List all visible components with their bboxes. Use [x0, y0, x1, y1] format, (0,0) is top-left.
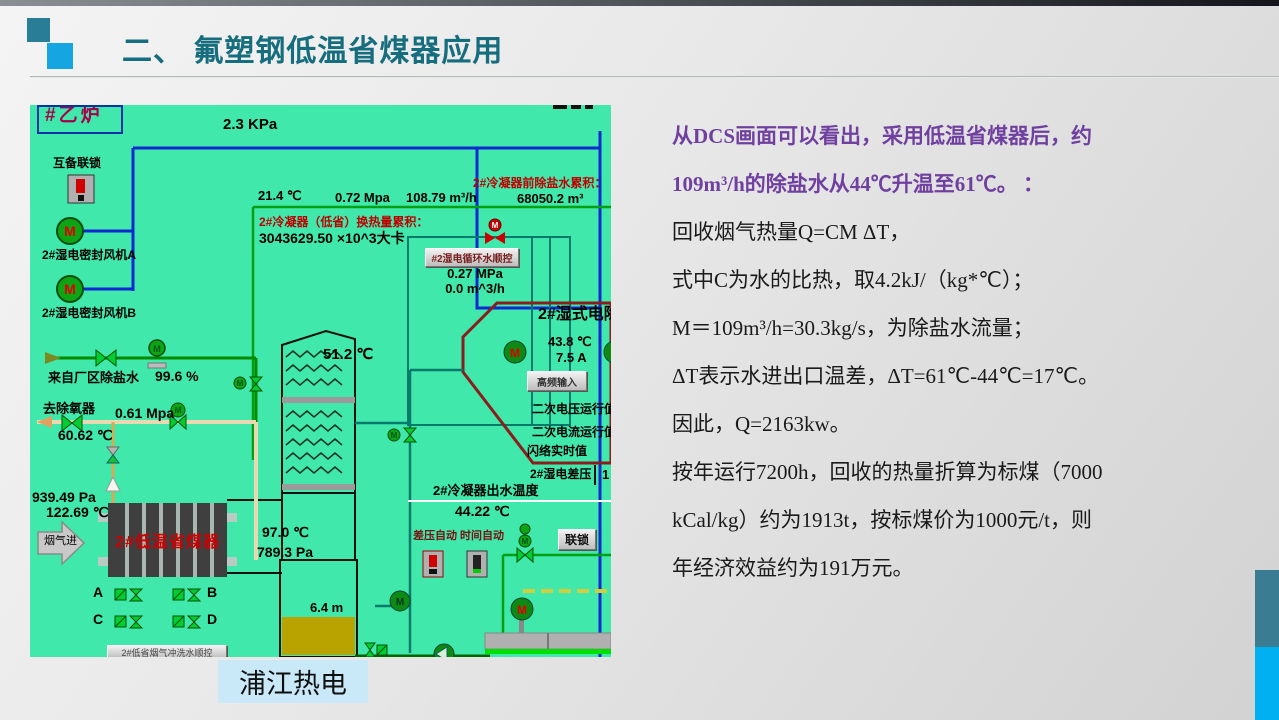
boiler-label-box: #乙炉: [37, 105, 123, 134]
circulation-seq-button[interactable]: #2湿电循环水顺控: [425, 248, 519, 267]
gas-in-pressure-value: 939.49 Pa: [32, 490, 96, 505]
body-line: kCal/kg）约为1913t，按标煤价为1000元/t，则: [672, 496, 1247, 544]
branch-motor-valve-icon[interactable]: M: [234, 377, 262, 391]
flue-duct-lines: [83, 131, 600, 657]
spray-motor-valve-icon[interactable]: M: [485, 219, 505, 244]
body-line: 从DCS画面可以看出，采用低温省煤器后，约: [672, 112, 1247, 160]
valve-open-value: 99.6 %: [155, 369, 199, 384]
drain-pump-icon[interactable]: [434, 644, 454, 657]
wesp-title: 2#湿式电除尘: [538, 307, 611, 324]
inlet-valve-icon[interactable]: [96, 350, 116, 366]
accent-bar-teal: [1255, 570, 1279, 647]
interlock-valve-icon[interactable]: [520, 524, 530, 534]
fan-a-motor-icon[interactable]: M: [57, 218, 83, 244]
wesp-motor2-icon[interactable]: [604, 341, 611, 363]
out-pressure-value: 789.3 Pa: [257, 545, 313, 560]
svg-text:M: M: [492, 221, 499, 230]
deaerator-label: 去除氧器: [43, 402, 95, 416]
svg-text:M: M: [391, 431, 398, 440]
svg-text:M: M: [64, 223, 76, 239]
page-title: 二、 氟塑钢低温省煤器应用: [122, 26, 503, 70]
outlet-temp-value: 44.22 ℃: [455, 504, 510, 519]
secondary-current-label: 二次电流运行值: [532, 426, 611, 439]
pre-desalt-accum-value: 68050.2 m³: [517, 192, 584, 206]
hf-input-button[interactable]: 高频输入: [527, 371, 587, 391]
svg-text:M: M: [175, 406, 182, 415]
condensate-pipes: [355, 370, 463, 653]
pre-desalt-accum-label: 2#冷凝器前除盐水累积：: [473, 177, 606, 190]
svg-text:M: M: [510, 346, 520, 360]
outlet-temp-label: 2#冷凝器出水温度: [433, 484, 538, 498]
flush-valve-b-icon[interactable]: [173, 589, 200, 601]
inlet-flow-value: 108.79 m³/h: [406, 191, 477, 205]
deco-square-teal: [27, 18, 50, 42]
valve-c-label: C: [93, 612, 103, 627]
body-line: 因此，Q=2163kw。: [672, 400, 1247, 448]
dp-auto-label: 差压自动: [413, 531, 457, 543]
flush-motor-valve-icon[interactable]: M: [517, 535, 533, 562]
heat-accum-label: 2#冷凝器（低省）换热量累积：: [259, 216, 428, 229]
tank-level-value: 6.4 m: [310, 601, 343, 615]
interlock-label: 互备联锁: [53, 157, 101, 170]
fan-a-label: 2#湿电密封风机A: [42, 249, 136, 262]
accent-bar-blue: [1255, 647, 1279, 720]
top-accent-strip: [0, 0, 1279, 6]
dcs-screenshot: M M M M: [30, 105, 611, 657]
wesp-dp-value: 1: [602, 468, 609, 482]
flue-gas-label: 烟气进: [44, 536, 77, 548]
body-line: 按年运行7200h，回收的热量折算为标煤（7000: [672, 448, 1247, 496]
valve-a-label: A: [93, 585, 103, 600]
pipe-arrow: [45, 352, 61, 364]
time-auto-label: 时间自动: [460, 531, 504, 543]
interlock-toggle-icon[interactable]: [68, 175, 94, 203]
clipped-text-fragment: [585, 105, 593, 109]
body-line: M＝109m³/h=30.3kg/s，为除盐水流量；: [672, 304, 1247, 352]
economizer-label: 2#低温省煤器: [108, 503, 227, 577]
flush-seq-button[interactable]: 2#低省烟气冲洗水顺控: [107, 645, 227, 657]
outlet-motor-valve-icon[interactable]: M: [388, 428, 416, 442]
body-line: ΔT表示水进出口温差，ΔT=61℃-44℃=17℃。: [672, 352, 1247, 400]
svg-text:M: M: [237, 379, 244, 388]
basin-structure: [485, 633, 611, 654]
spray-flow-value: 0.0 m^3/h: [430, 282, 520, 296]
boiler-label: #乙炉: [45, 105, 103, 126]
clipped-text-fragment: [553, 105, 567, 109]
flashover-label: 闪络实时值: [527, 445, 587, 458]
deaerator-temp-value: 60.62 ℃: [58, 428, 113, 443]
slide: 二、 氟塑钢低温省煤器应用: [0, 0, 1279, 720]
clipped-text-fragment: [571, 105, 581, 109]
svg-text:M: M: [522, 537, 529, 546]
body-line: 回收烟气热量Q=CM ΔT，: [672, 208, 1247, 256]
flush-valve-a-icon[interactable]: [115, 589, 142, 601]
body-text: 从DCS画面可以看出，采用低温省煤器后，约 109m³/h的除盐水从44℃升温至…: [672, 112, 1247, 592]
inlet-water-label: 来自厂区除盐水: [48, 371, 139, 385]
spray-pressure-value: 0.27 MPa: [430, 267, 520, 281]
svg-text:M: M: [153, 344, 161, 354]
heat-accum-value: 3043629.50 ×10^3大卡: [259, 231, 405, 246]
wesp-temp-value: 43.8 ℃: [548, 335, 592, 349]
mid-temp-value: 51.2 ℃: [323, 347, 373, 363]
deco-square-blue: [47, 43, 73, 69]
agitator-motor-icon[interactable]: M: [511, 598, 533, 633]
wesp-motor-icon[interactable]: M: [504, 341, 526, 363]
interlock-button[interactable]: 联锁: [558, 529, 596, 550]
fan-b-motor-icon[interactable]: M: [57, 276, 83, 302]
deaerator-pressure-value: 0.61 Mpa: [115, 406, 174, 421]
wesp-dp-label: 2#湿电差压: [530, 468, 591, 481]
wesp-current-value: 7.5 A: [556, 351, 587, 365]
inlet-motor-valve-icon[interactable]: M: [148, 340, 166, 368]
inlet-temp-value: 21.4 ℃: [258, 189, 302, 203]
pump-motor-icon[interactable]: M: [390, 591, 410, 611]
duct-pressure-value: 2.3 KPa: [223, 117, 277, 133]
svg-text:M: M: [517, 603, 527, 617]
body-line: 109m³/h的除盐水从44℃升温至61℃。 ：: [672, 160, 1247, 208]
out-temp-value: 97.0 ℃: [262, 525, 309, 540]
fan-b-label: 2#湿电密封风机B: [42, 307, 136, 320]
valve-d-label: D: [207, 612, 217, 627]
inlet-pressure-value: 0.72 Mpa: [335, 191, 390, 205]
divider-line: [408, 500, 611, 502]
flush-valve-d-icon[interactable]: [173, 616, 200, 628]
title-divider: [30, 76, 1279, 78]
body-line: 年经济效益约为191万元。: [672, 544, 1247, 592]
time-auto-toggle-icon[interactable]: [467, 551, 487, 577]
flush-valve-c-icon[interactable]: [115, 616, 142, 628]
secondary-voltage-label: 二次电压运行值: [532, 403, 611, 416]
caption-badge: 浦江热电: [218, 660, 368, 703]
svg-text:M: M: [64, 281, 76, 297]
body-line: 式中C为水的比热，取4.2kJ/（kg*℃）；: [672, 256, 1247, 304]
dp-auto-toggle-icon[interactable]: [423, 551, 443, 577]
svg-text:M: M: [396, 597, 404, 608]
gas-in-temp-value: 122.69 ℃: [46, 505, 108, 520]
valve-b-label: B: [207, 585, 217, 600]
